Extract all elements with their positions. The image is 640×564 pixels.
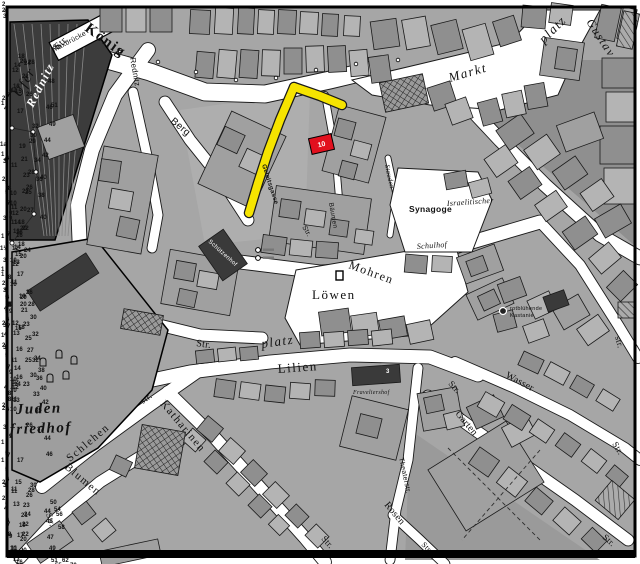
house-number: 11 (11, 487, 18, 493)
house-number: 13 (13, 502, 20, 508)
building-parcel (606, 92, 634, 122)
tombstone-icon (40, 358, 46, 366)
building-parcel (239, 382, 261, 401)
house-number: 28 (28, 302, 35, 308)
city-map-canvas: 10KönigStr.UferRednitzMaxbrückeRednitzBe… (0, 0, 640, 564)
monument-icon (336, 271, 343, 280)
building-parcel (174, 260, 197, 281)
house-number: 23 (23, 173, 30, 179)
house-number: 46 (46, 452, 53, 458)
building-parcel (279, 199, 301, 220)
building-parcel (289, 239, 313, 257)
house-number: 26 (26, 92, 33, 98)
building-parcel (404, 254, 427, 274)
house-number: 56 (56, 512, 63, 518)
house-number: 10 (10, 191, 17, 197)
house-number: 49 (49, 122, 56, 128)
building-parcel (602, 58, 634, 88)
house-number: 11 (11, 358, 18, 364)
building-parcel (343, 16, 360, 37)
building-parcel (315, 241, 338, 258)
building-parcel (338, 160, 358, 180)
house-number: 21 (21, 513, 28, 519)
house-number: 48 (48, 79, 55, 85)
building-parcel (315, 380, 336, 397)
building-parcel (402, 16, 431, 50)
tombstone-icon (47, 374, 53, 382)
roadside-marker (194, 70, 198, 74)
place-label: Fraveliershof (352, 389, 391, 396)
house-number: 50 (50, 500, 57, 506)
building-parcel (555, 47, 578, 72)
building-parcel (299, 331, 320, 348)
house-number: 15 (15, 89, 22, 95)
house-number: 27 (27, 208, 34, 214)
house-number: 44 (44, 509, 51, 515)
street-label: Str. (196, 338, 212, 351)
house-number: 24 (24, 248, 31, 254)
building-parcel (177, 288, 198, 307)
house-number: 38 (38, 193, 45, 199)
house-number: 10 (10, 282, 17, 288)
house-number: 1 (1, 234, 5, 240)
roadside-marker (274, 76, 278, 80)
building-parcel (424, 394, 445, 413)
house-number: 19 (19, 523, 26, 529)
building-parcel (116, 216, 140, 240)
building-parcel (99, 159, 122, 184)
house-number: 20 (20, 207, 27, 213)
house-number: 19 (19, 144, 26, 150)
house-number: 2 (2, 96, 6, 102)
tombstone-icon (71, 356, 77, 364)
building-parcel (239, 49, 259, 78)
building-parcel (257, 10, 274, 35)
house-number: 32 (32, 358, 39, 364)
house-number: 30 (30, 373, 37, 379)
house-number: 22 (22, 189, 29, 195)
fountain-icon (256, 248, 261, 253)
building-parcel (217, 49, 237, 78)
street-label: Löwen (312, 287, 356, 302)
building-parcel (368, 55, 391, 84)
fountain-icon (256, 256, 261, 261)
roadside-marker (354, 62, 358, 66)
building-parcel (197, 270, 219, 289)
house-number: 18 (18, 220, 25, 226)
house-number: 12 (12, 262, 19, 268)
house-number: 30 (30, 133, 37, 139)
house-number: 21 (21, 157, 28, 163)
building-parcel (327, 46, 346, 73)
building-parcel (324, 331, 345, 347)
house-number: 20 (20, 254, 27, 260)
house-number: 53 (53, 45, 60, 51)
building-parcel (264, 385, 286, 403)
building-parcel (299, 12, 318, 35)
building-parcel (370, 18, 400, 49)
house-number: 26 (26, 493, 33, 499)
house-number: 44 (44, 436, 51, 442)
house-number: 23 (23, 382, 30, 388)
place-label: Synagoge (409, 204, 452, 214)
house-number: 16 (16, 347, 23, 353)
boundary-marker (10, 126, 14, 130)
house-number: 51 (51, 103, 58, 109)
house-number: 37 (37, 427, 44, 433)
house-number: 1 (1, 272, 5, 278)
house-number: 17 (17, 109, 24, 115)
house-number: 14 (14, 366, 21, 372)
house-number: 35 (35, 408, 42, 414)
building-parcel (289, 382, 310, 399)
place-label: Kastanie (510, 313, 534, 319)
building-parcel (195, 51, 215, 78)
house-number: 38 (38, 368, 45, 374)
house-number: 17 (17, 533, 24, 539)
house-number: 29 (29, 139, 36, 145)
building-parcel (354, 229, 374, 245)
tiny-label-mark (263, 257, 274, 259)
roadside-marker (314, 68, 318, 72)
house-number: 10 (10, 377, 17, 383)
house-number: 15 (15, 480, 22, 486)
place-label: rotblühende (510, 306, 542, 312)
house-number: 62 (62, 558, 69, 564)
house-number: 33 (33, 392, 40, 398)
building-parcel (600, 126, 634, 164)
chestnut-tree-icon (500, 308, 507, 315)
building-parcel (126, 6, 146, 32)
building-parcel (371, 329, 392, 346)
building-parcel (349, 49, 369, 76)
house-number: 46 (46, 519, 53, 525)
house-number: 36 (36, 177, 43, 183)
building-parcel (214, 8, 233, 35)
street-label: Lilien (277, 358, 318, 376)
house-number: 21 (21, 308, 28, 314)
building-parcel (150, 8, 172, 32)
building-parcel (432, 255, 453, 272)
house-number: 13 (13, 331, 20, 337)
house-number: 28 (28, 60, 35, 66)
building-parcel (321, 14, 338, 37)
house-number: 36 (36, 376, 43, 382)
house-number: 34 (34, 158, 41, 164)
house-number: 25 (25, 358, 32, 364)
building-parcel (108, 188, 133, 212)
house-number: 27 (27, 348, 34, 354)
building-parcel (351, 364, 400, 385)
house-number: 14 (14, 245, 21, 251)
building-parcel (237, 8, 254, 35)
house-number: 26 (26, 290, 33, 296)
house-number: 1 (1, 440, 5, 446)
house-number: 26 (26, 423, 33, 429)
house-number: 23 (23, 503, 30, 509)
house-number: 40 (40, 386, 47, 392)
house-number: 1 (1, 458, 5, 464)
building-parcel (261, 234, 287, 255)
building-parcel (239, 346, 258, 361)
building-parcel (284, 48, 302, 74)
building-parcel (189, 9, 210, 34)
house-number: 13 (13, 398, 20, 404)
building-parcel (195, 349, 214, 364)
house-number: 18 (18, 325, 25, 331)
house-number: 16 (16, 233, 23, 239)
house-number: 17 (17, 458, 24, 464)
house-number: 32 (32, 332, 39, 338)
building-parcel (618, 302, 636, 318)
tiny-label-mark (263, 249, 274, 251)
house-number: 42 (42, 400, 49, 406)
building-parcel (348, 329, 369, 345)
house-number: 32 (32, 124, 39, 130)
house-number: 58 (58, 525, 65, 531)
house-number: 30 (30, 315, 37, 321)
map-frame-bottom (7, 550, 635, 558)
building-parcel (217, 347, 236, 362)
building-parcel (135, 425, 186, 476)
city-map-page: 10KönigStr.UferRednitzMaxbrückeRednitzBe… (0, 0, 640, 564)
house-number: 22 (22, 74, 29, 80)
house-number: 47 (47, 535, 54, 541)
building-parcel (521, 5, 547, 29)
roadside-marker (234, 78, 238, 82)
building-parcel (262, 50, 281, 77)
house-number: 42 (42, 153, 49, 159)
tombstone-icon (56, 350, 62, 358)
building-parcel (277, 10, 296, 35)
roadside-marker (156, 60, 160, 64)
building-parcel (524, 82, 548, 109)
house-number: 17 (17, 272, 24, 278)
building-parcel (214, 379, 236, 400)
house-number: 40 (40, 215, 47, 221)
house-number: 20 (20, 295, 27, 301)
house-number: 12 (12, 211, 19, 217)
house-number: 10 (10, 407, 17, 413)
roadside-marker (396, 58, 400, 62)
building-parcel (444, 170, 468, 190)
house-number: 20 (20, 226, 27, 232)
tombstone-icon (63, 371, 69, 379)
house-number: 11 (11, 163, 18, 169)
house-number: 11 (11, 205, 18, 211)
house-number: 20 (20, 302, 27, 308)
house-number: 44 (44, 138, 51, 144)
